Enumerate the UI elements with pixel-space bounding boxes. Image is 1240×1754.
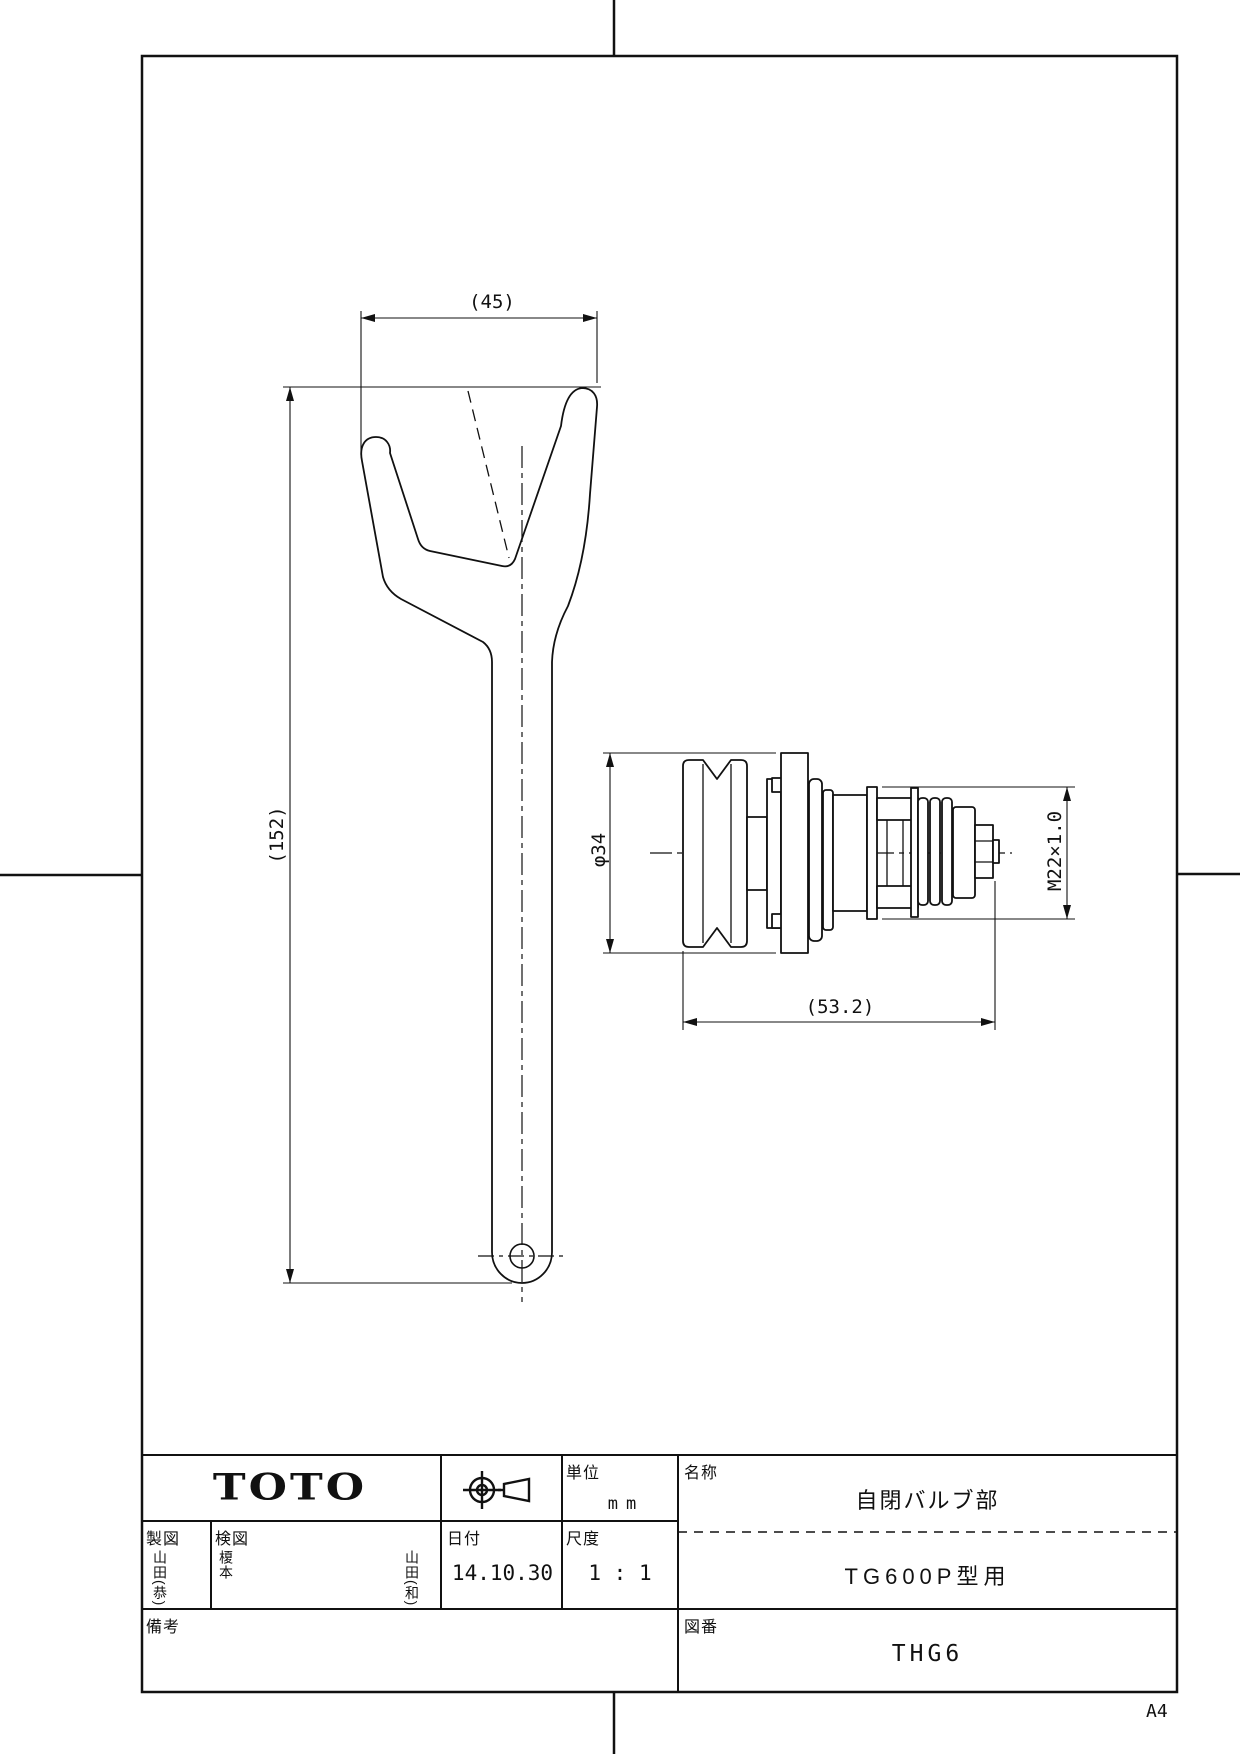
- drafter-name: 山田(恭): [150, 1550, 169, 1592]
- valve-drawing: [650, 753, 1012, 953]
- valve-thread-section: [867, 787, 877, 919]
- valve-cap: [683, 760, 747, 947]
- checker-name: 榎本: [216, 1550, 235, 1592]
- dim-wrench-width: (45): [442, 291, 542, 313]
- wrench-hidden-line: [468, 391, 509, 558]
- dim-thread-spec: M22×1.0: [1044, 786, 1066, 916]
- valve-body: [833, 795, 867, 911]
- drafter-label: 製図: [146, 1525, 180, 1549]
- scale-label: 尺度: [566, 1525, 600, 1549]
- drawing-sheet: { "sheet": { "size": "A4" }, "dim": { "w…: [0, 0, 1240, 1754]
- dim-valve-length: (53.2): [790, 996, 890, 1018]
- date-label: 日付: [447, 1525, 481, 1549]
- drawing-number-label: 図番: [684, 1613, 718, 1637]
- checker-label: 検図: [215, 1525, 249, 1549]
- valve-stem-tip: [993, 840, 999, 863]
- unit-value: mm: [576, 1494, 676, 1514]
- valve-oring: [942, 798, 952, 905]
- sheet-container: (45) (152) φ34 M22×1.0 (53.2) TOTO 単位 mm…: [0, 0, 1240, 1754]
- dim-wrench-length: (152): [266, 775, 288, 895]
- drawing-number: THG6: [678, 1641, 1177, 1667]
- approver-name: 山田(和): [402, 1550, 421, 1592]
- part-name: 自閉バルブ部: [678, 1483, 1177, 1515]
- model-name: TG600P型用: [678, 1559, 1177, 1591]
- toto-logo: TOTO: [200, 1467, 380, 1509]
- scale-value: 1 : 1: [562, 1561, 678, 1585]
- date-value: 14.10.30: [443, 1561, 562, 1585]
- valve-hex-nut: [975, 825, 993, 878]
- valve-flange: [781, 753, 808, 953]
- border-rect: [142, 56, 1177, 1692]
- valve-oring: [918, 798, 928, 905]
- unit-label: 単位: [566, 1459, 600, 1483]
- dim-valve-diameter: φ34: [588, 790, 610, 910]
- wrench-outline: [361, 388, 597, 1283]
- paper-size-label: A4: [1146, 1701, 1168, 1722]
- valve-disc: [767, 779, 781, 928]
- wrench-drawing: [361, 388, 597, 1302]
- valve-oring: [930, 798, 940, 905]
- wrench-dimensions: [283, 311, 601, 1283]
- valve-neck: [747, 817, 767, 890]
- remarks-label: 備考: [146, 1613, 180, 1637]
- part-name-label: 名称: [684, 1459, 718, 1483]
- projection-symbol-icon: [463, 1471, 529, 1509]
